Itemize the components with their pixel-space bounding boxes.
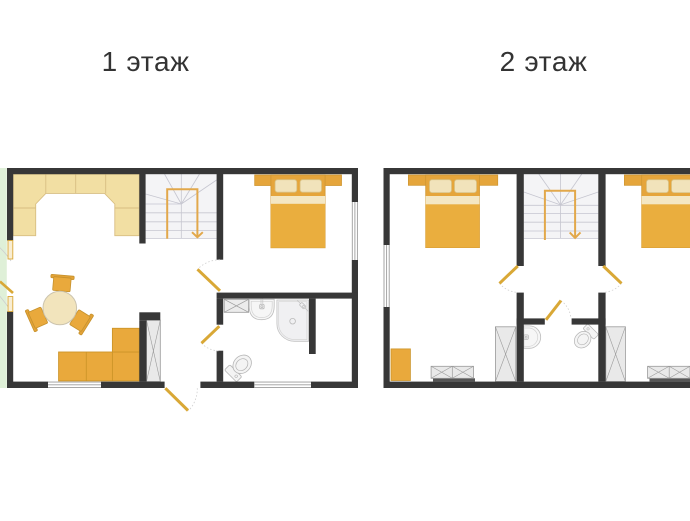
svg-text:1 этаж: 1 этаж <box>102 46 190 77</box>
svg-text:2 этаж: 2 этаж <box>500 46 588 77</box>
